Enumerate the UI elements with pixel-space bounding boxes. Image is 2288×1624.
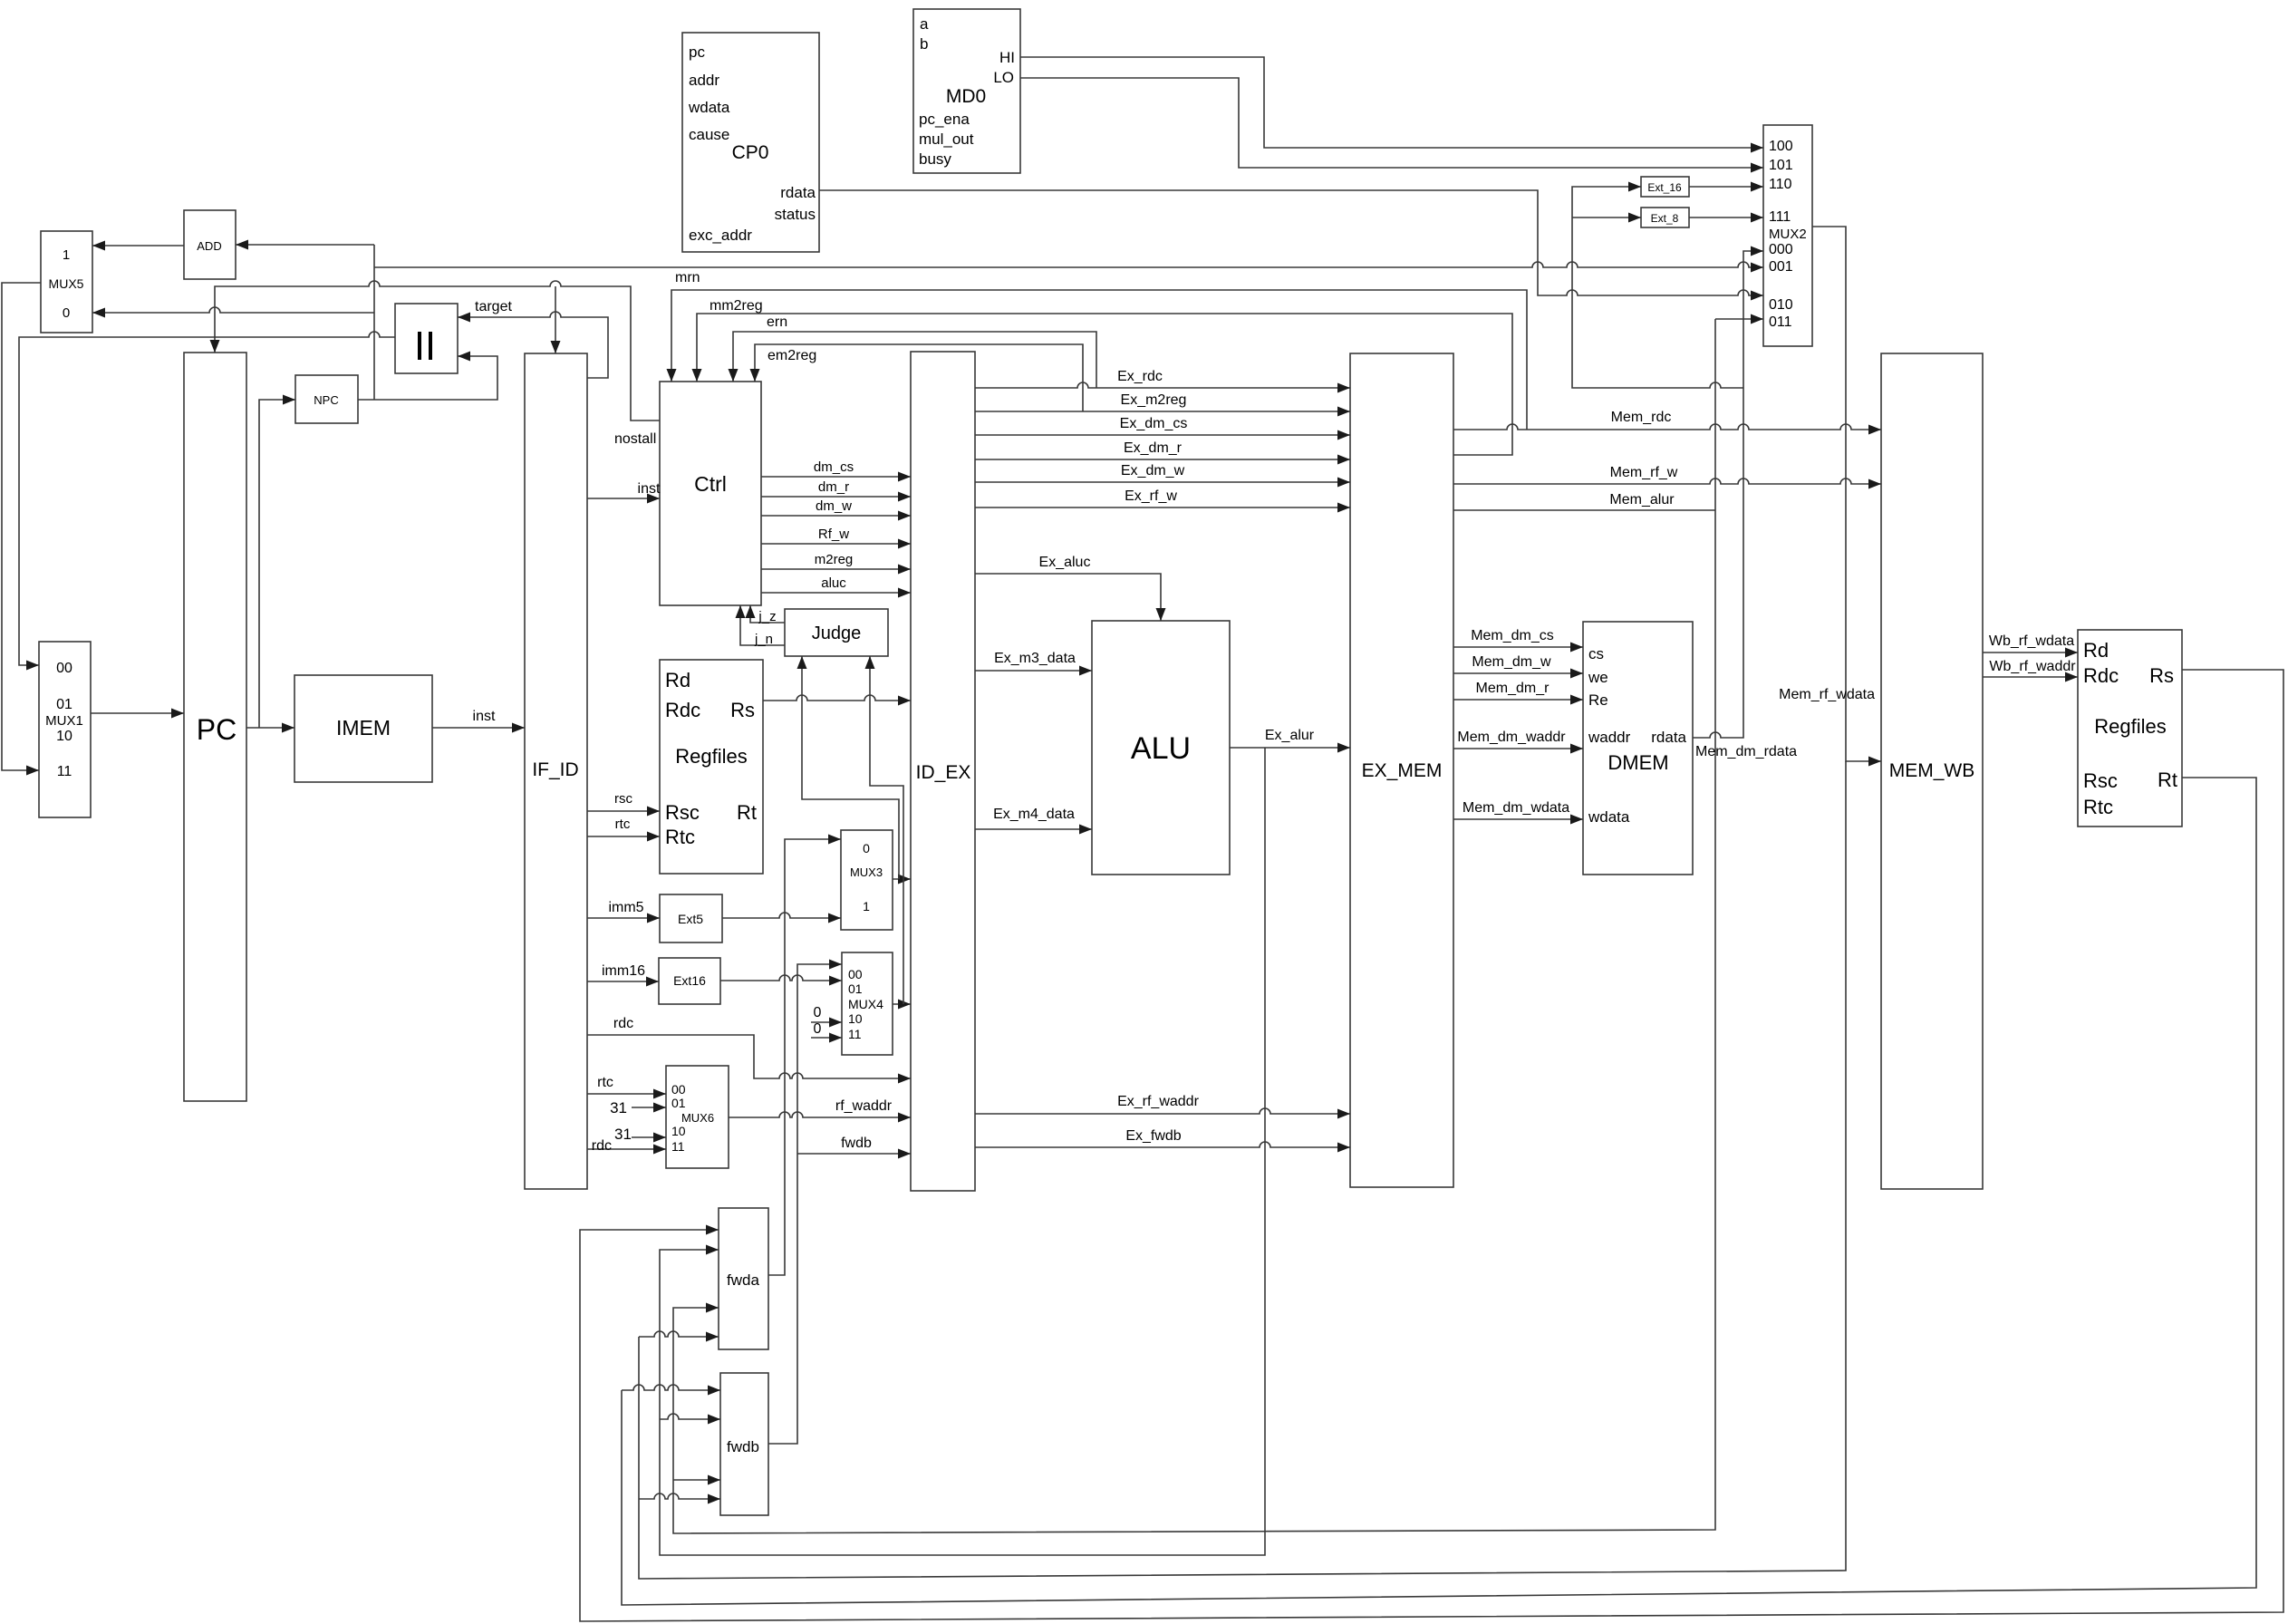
svg-text:busy: busy	[919, 150, 951, 168]
svg-text:rdata: rdata	[780, 184, 816, 201]
svg-text:mm2reg: mm2reg	[710, 298, 763, 314]
svg-text:Ext5: Ext5	[678, 912, 703, 926]
svg-text:DMEM: DMEM	[1607, 751, 1668, 774]
svg-text:Rd: Rd	[665, 669, 690, 691]
svg-text:MUX4: MUX4	[848, 997, 883, 1011]
svg-text:dm_r: dm_r	[818, 479, 849, 495]
svg-text:target: target	[475, 299, 512, 314]
svg-text:MUX6: MUX6	[681, 1111, 714, 1125]
svg-text:HI: HI	[999, 49, 1015, 66]
svg-text:fwdb: fwdb	[841, 1136, 872, 1151]
svg-text:addr: addr	[689, 72, 719, 89]
svg-text:Ex_m3_data: Ex_m3_data	[994, 651, 1076, 666]
svg-text:Ex_alur: Ex_alur	[1265, 728, 1315, 743]
svg-text:Rt: Rt	[737, 801, 757, 824]
svg-text:Mem_dm_cs: Mem_dm_cs	[1471, 628, 1554, 643]
svg-text:rtc: rtc	[615, 817, 631, 832]
svg-text:Mem_dm_rdata: Mem_dm_rdata	[1695, 744, 1797, 759]
svg-text:Rtc: Rtc	[665, 826, 695, 848]
svg-text:nostall: nostall	[614, 431, 656, 447]
svg-text:ID_EX: ID_EX	[916, 762, 971, 783]
svg-text:31: 31	[614, 1126, 632, 1143]
svg-text:imm16: imm16	[602, 963, 645, 979]
svg-text:Ex_aluc: Ex_aluc	[1039, 555, 1091, 570]
svg-text:0: 0	[814, 1021, 822, 1037]
svg-text:111: 111	[1769, 209, 1791, 225]
svg-text:Rs: Rs	[730, 699, 755, 721]
svg-text:dm_w: dm_w	[816, 498, 852, 514]
svg-text:inst: inst	[473, 709, 496, 724]
svg-text:Regfiles: Regfiles	[2094, 715, 2166, 738]
svg-text:Rsc: Rsc	[2083, 769, 2118, 792]
svg-text:00: 00	[848, 967, 863, 981]
svg-text:100: 100	[1769, 139, 1793, 154]
svg-text:rdc: rdc	[613, 1016, 633, 1031]
svg-text:Ext_8: Ext_8	[1651, 212, 1679, 225]
svg-text:inst: inst	[638, 481, 661, 497]
svg-text:Ex_dm_cs: Ex_dm_cs	[1120, 416, 1188, 431]
svg-text:MUX2: MUX2	[1769, 227, 1807, 242]
svg-text:Ex_dm_r: Ex_dm_r	[1124, 440, 1183, 456]
svg-text:011: 011	[1769, 314, 1792, 330]
svg-text:wdata: wdata	[688, 99, 730, 116]
svg-text:Mem_dm_waddr: Mem_dm_waddr	[1457, 730, 1566, 745]
svg-text:MUX5: MUX5	[49, 276, 84, 291]
svg-text:Rsc: Rsc	[665, 801, 700, 824]
svg-text:001: 001	[1769, 259, 1793, 275]
svg-text:status: status	[775, 206, 816, 223]
svg-text:ALU: ALU	[1131, 731, 1191, 766]
svg-text:Ex_dm_w: Ex_dm_w	[1121, 463, 1185, 478]
svg-text:10: 10	[671, 1124, 686, 1138]
svg-text:10: 10	[56, 729, 72, 744]
svg-text:Rdc: Rdc	[2083, 664, 2119, 687]
svg-text:PC: PC	[197, 713, 237, 746]
svg-text:Mem_dm_wdata: Mem_dm_wdata	[1463, 800, 1569, 816]
svg-text:dm_cs: dm_cs	[814, 459, 854, 475]
svg-text:rf_waddr: rf_waddr	[835, 1098, 893, 1114]
svg-text:fwda: fwda	[727, 1271, 759, 1289]
svg-text:Rt: Rt	[2158, 768, 2177, 791]
svg-text:MUX3: MUX3	[850, 865, 883, 879]
svg-text:Ex_fwdb: Ex_fwdb	[1125, 1128, 1181, 1144]
svg-text:wdata: wdata	[1588, 808, 1630, 826]
svg-text:j_n: j_n	[754, 632, 773, 647]
svg-text:rdata: rdata	[1651, 729, 1686, 746]
svg-text:Mem_rf_wdata: Mem_rf_wdata	[1779, 687, 1875, 702]
svg-text:1: 1	[863, 899, 870, 913]
svg-text:101: 101	[1769, 158, 1793, 173]
svg-text:31: 31	[610, 1099, 627, 1116]
svg-text:Wb_rf_waddr: Wb_rf_waddr	[1989, 659, 2076, 674]
svg-text:00: 00	[671, 1082, 686, 1097]
svg-text:01: 01	[848, 981, 863, 996]
svg-text:Judge: Judge	[812, 623, 862, 643]
svg-text:cause: cause	[689, 126, 729, 143]
svg-text:LO: LO	[993, 69, 1014, 86]
svg-text:00: 00	[56, 661, 72, 676]
svg-text:NPC: NPC	[314, 393, 338, 407]
svg-text:a: a	[920, 15, 929, 33]
svg-text:exc_addr: exc_addr	[689, 227, 752, 244]
svg-text:aluc: aluc	[821, 575, 846, 591]
svg-text:Ex_rf_waddr: Ex_rf_waddr	[1117, 1094, 1199, 1109]
svg-text:Re: Re	[1588, 691, 1608, 709]
svg-text:Wb_rf_wdata: Wb_rf_wdata	[1989, 633, 2074, 649]
svg-text:em2reg: em2reg	[767, 348, 816, 363]
svg-text:j_z: j_z	[758, 609, 776, 624]
svg-text:waddr: waddr	[1588, 729, 1631, 746]
svg-text:Ex_rf_w: Ex_rf_w	[1125, 488, 1177, 504]
svg-text:000: 000	[1769, 242, 1793, 257]
svg-text:MD0: MD0	[946, 86, 986, 107]
svg-text:Mem_alur: Mem_alur	[1609, 492, 1675, 507]
svg-text:mul_out: mul_out	[919, 130, 974, 148]
svg-text:rsc: rsc	[614, 791, 632, 807]
svg-text:Mem_dm_r: Mem_dm_r	[1476, 681, 1550, 696]
svg-text:Rf_w: Rf_w	[818, 527, 849, 542]
svg-text:01: 01	[671, 1096, 686, 1110]
svg-text:11: 11	[671, 1139, 685, 1154]
svg-text:0: 0	[63, 305, 70, 321]
svg-text:Mem_rf_w: Mem_rf_w	[1610, 465, 1678, 480]
svg-text:Ctrl: Ctrl	[694, 472, 727, 496]
svg-text:Rtc: Rtc	[2083, 796, 2113, 818]
svg-text:Mem_rdc: Mem_rdc	[1611, 410, 1672, 425]
svg-text:pc_ena: pc_ena	[919, 111, 970, 128]
svg-text:b: b	[920, 35, 928, 53]
svg-text:Ext_16: Ext_16	[1647, 181, 1682, 194]
svg-text:11: 11	[57, 764, 72, 779]
svg-text:Mem_dm_w: Mem_dm_w	[1472, 654, 1551, 670]
svg-text:rtc: rtc	[597, 1075, 613, 1090]
svg-text:Ex_m4_data: Ex_m4_data	[993, 807, 1075, 822]
svg-text:fwdb: fwdb	[727, 1438, 759, 1455]
svg-text:rdc: rdc	[592, 1138, 612, 1154]
svg-text:pc: pc	[689, 43, 705, 61]
svg-text:Rs: Rs	[2149, 664, 2174, 687]
svg-text:cs: cs	[1588, 645, 1604, 662]
svg-text:Ex_m2reg: Ex_m2reg	[1121, 392, 1187, 408]
svg-text:Rdc: Rdc	[665, 699, 700, 721]
svg-text:010: 010	[1769, 297, 1793, 313]
svg-text:we: we	[1588, 669, 1608, 686]
svg-text:01: 01	[56, 697, 72, 712]
svg-text:MEM_WB: MEM_WB	[1889, 760, 1975, 781]
svg-text:IMEM: IMEM	[336, 716, 391, 739]
svg-text:10: 10	[848, 1011, 863, 1026]
svg-text:Ext16: Ext16	[673, 973, 706, 988]
svg-text:Rd: Rd	[2083, 639, 2109, 662]
svg-text:mrn: mrn	[675, 270, 700, 285]
svg-text:0: 0	[814, 1005, 822, 1020]
svg-text:11: 11	[848, 1027, 862, 1041]
svg-text:Regfiles: Regfiles	[675, 745, 747, 768]
svg-text:1: 1	[63, 247, 70, 263]
svg-text:0: 0	[863, 841, 870, 855]
svg-text:ern: ern	[767, 314, 787, 330]
svg-text:imm5: imm5	[608, 900, 643, 915]
svg-text:110: 110	[1769, 177, 1792, 192]
svg-text:Ex_rdc: Ex_rdc	[1117, 369, 1163, 384]
svg-text:CP0: CP0	[732, 142, 769, 163]
svg-text:IF_ID: IF_ID	[532, 759, 578, 780]
svg-text:MUX1: MUX1	[45, 713, 83, 729]
svg-text:m2reg: m2reg	[815, 552, 854, 567]
svg-text:ADD: ADD	[197, 239, 221, 253]
svg-text:EX_MEM: EX_MEM	[1362, 760, 1443, 781]
